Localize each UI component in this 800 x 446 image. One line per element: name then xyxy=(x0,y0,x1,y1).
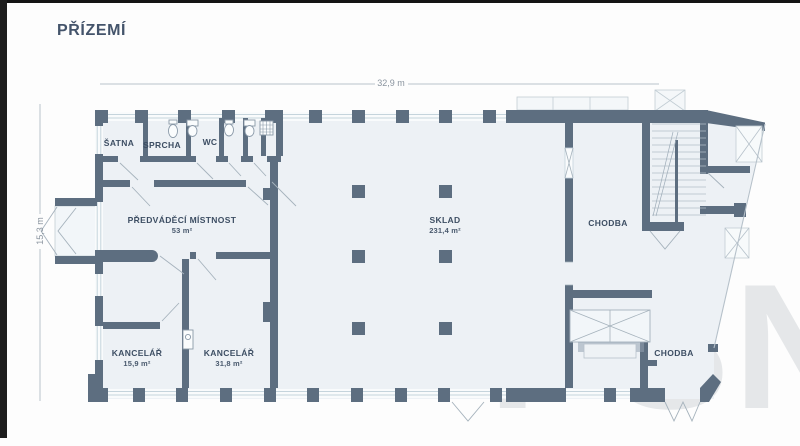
shaft-grid-icon xyxy=(260,121,273,135)
room-label-kancelar-large: KANCELÁŘ xyxy=(204,348,255,358)
room-label-wc: WC xyxy=(203,137,218,147)
room-label-kancelar-small: KANCELÁŘ xyxy=(112,348,163,358)
exterior-structures xyxy=(517,90,685,111)
room-label-predvadeci: PŘEDVÁDĚCÍ MÍSTNOST xyxy=(128,215,237,225)
room-label-satna: ŠATNA xyxy=(104,138,134,148)
boiler-icon xyxy=(183,330,193,349)
toilet-icon-2 xyxy=(244,120,255,137)
room-area-predvadeci: 53 m² xyxy=(172,226,193,235)
toilet-icon xyxy=(187,120,198,137)
room-area-kancelar-small: 15,9 m² xyxy=(123,359,150,368)
sink-icon-2 xyxy=(225,120,234,136)
dimension-height: 15,3 m xyxy=(35,217,45,245)
room-label-chodba-top: CHODBA xyxy=(588,218,627,228)
room-label-chodba-bottom: CHODBA xyxy=(654,348,693,358)
room-area-kancelar-large: 31,8 m² xyxy=(215,359,242,368)
room-label-sprcha: SPRCHA xyxy=(143,140,181,150)
room-area-sklad: 231,4 m² xyxy=(429,226,461,235)
dimension-width: 32,9 m xyxy=(377,78,405,88)
floor-plan xyxy=(0,0,800,438)
sink-icon xyxy=(169,120,178,138)
room-label-sklad: SKLAD xyxy=(429,215,460,225)
